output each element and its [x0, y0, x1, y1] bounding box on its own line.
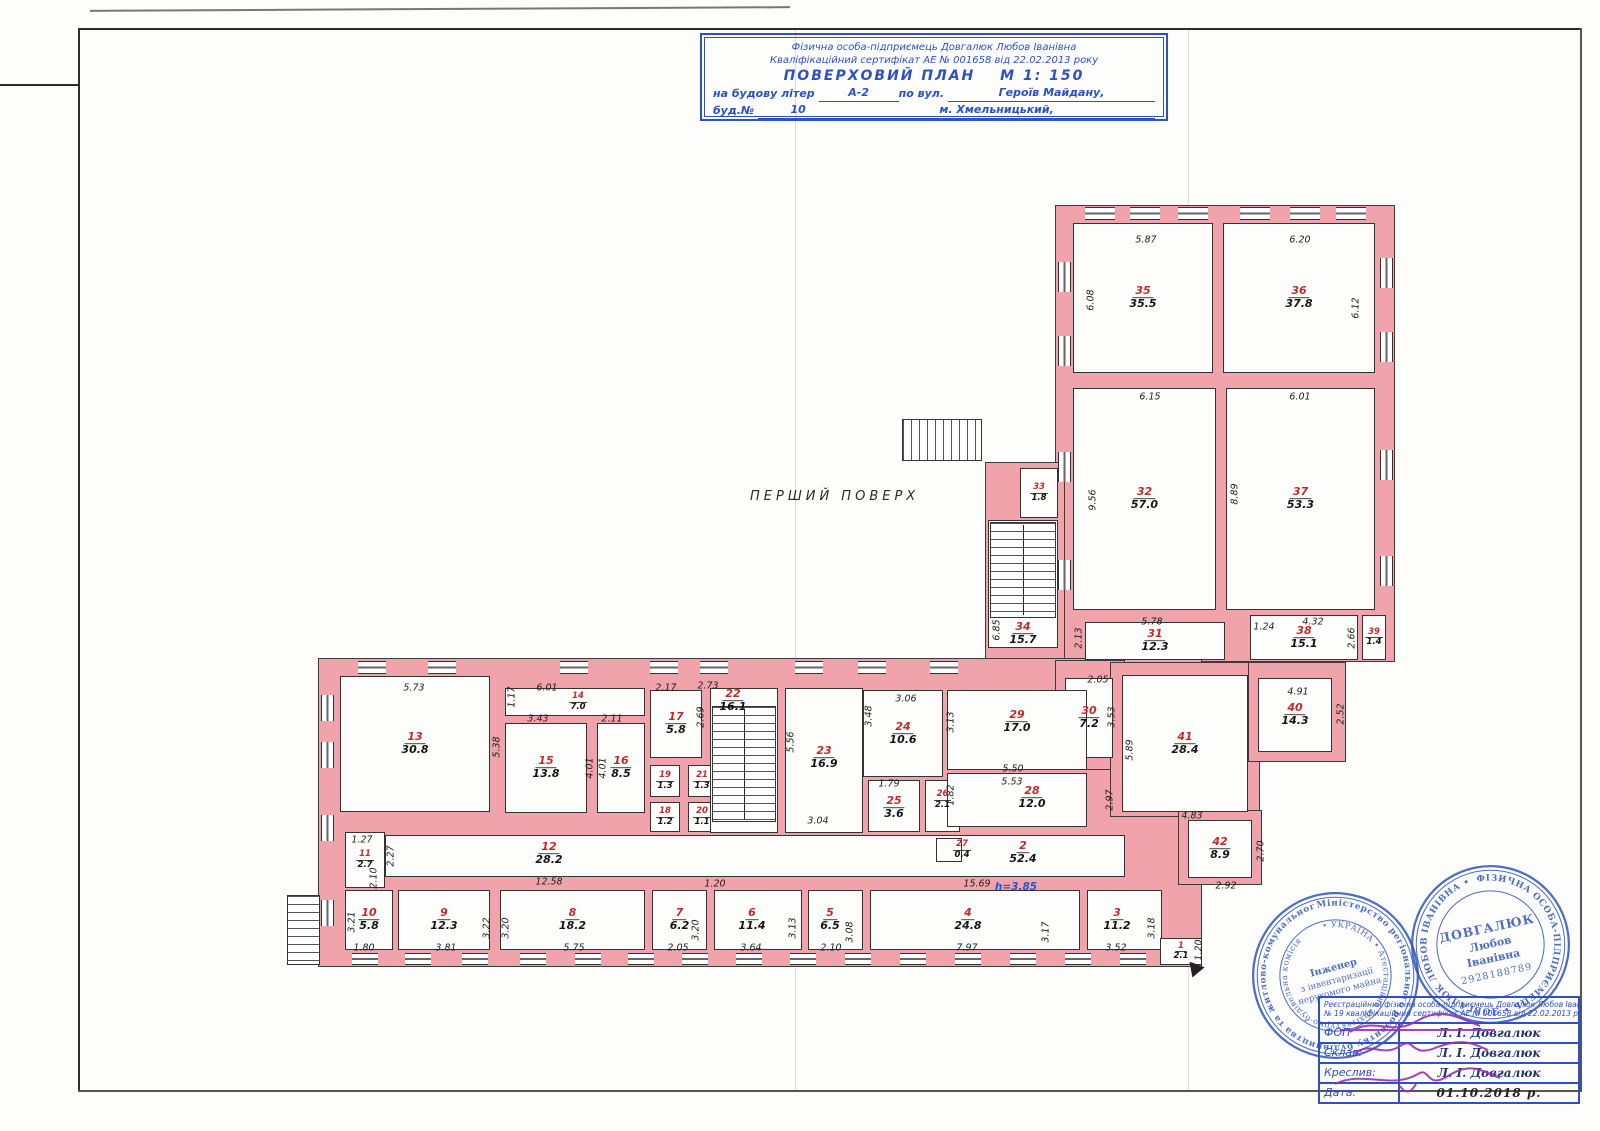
dimension-label: 5.75: [563, 943, 584, 954]
window-mark: [1380, 556, 1393, 586]
window-mark: [560, 661, 588, 674]
signature-stroke: [1335, 1068, 1500, 1091]
floor-title: ПЕРШИЙ ПОВЕРХ: [750, 489, 919, 504]
room-19-label: 191.3: [656, 771, 674, 791]
staircase: [287, 895, 320, 965]
dimension-label: 12.58: [535, 877, 562, 888]
dimension-label: 2.05: [1087, 675, 1108, 686]
room-5-label: 56.5: [820, 907, 840, 933]
dimension-label: 6.08: [1086, 289, 1097, 310]
room-17-label: 175.8: [665, 711, 686, 737]
dimension-label: 15.69: [963, 879, 990, 890]
signature-strokes: [1330, 1006, 1580, 1106]
room-26-label: 262.1: [934, 790, 952, 810]
room-area: 14.3: [1281, 716, 1308, 728]
dimension-label: 2.13: [1074, 627, 1085, 648]
room-area: 28.2: [535, 855, 562, 867]
scanned-sheet: Фізична особа-підприємець Довгалюк Любов…: [0, 0, 1600, 1131]
room-23-label: 2316.9: [810, 745, 837, 771]
room-number: 22: [722, 688, 743, 701]
room-area: 16.9: [810, 759, 837, 771]
room-area: 11.2: [1103, 921, 1130, 933]
room-area: 2.1: [934, 801, 952, 811]
window-mark: [1085, 207, 1115, 220]
room-number: 27: [953, 840, 971, 851]
room-4-label: 424.8: [954, 907, 981, 933]
dimension-label: 2.17: [655, 683, 676, 694]
room-area: 53.3: [1287, 500, 1314, 512]
window-mark: [1380, 450, 1393, 480]
room-number: 1: [1175, 941, 1187, 952]
signature-stroke: [1355, 1042, 1488, 1054]
room-1-label: 12.1: [1173, 941, 1188, 961]
dimension-label: 5.38: [492, 736, 503, 757]
room-24-label: 2410.6: [889, 721, 916, 747]
room-number: 7: [673, 907, 687, 920]
window-mark: [858, 661, 886, 674]
room-area: 1.3: [656, 782, 674, 792]
room-area: 18.2: [559, 921, 586, 933]
room-area: 11.4: [738, 921, 765, 933]
room-number: 20: [693, 807, 711, 818]
room-39-label: 391.4: [1365, 627, 1383, 647]
room-8-label: 818.2: [559, 907, 586, 933]
room-area: 12.3: [430, 921, 457, 933]
room-number: 12: [538, 841, 559, 854]
room-area: 7.2: [1078, 719, 1099, 731]
stair-divider: [1023, 525, 1024, 615]
stair-divider: [744, 709, 745, 819]
room-number: 37: [1290, 486, 1311, 499]
room-2-label: 252.4: [1009, 840, 1036, 866]
window-mark: [1120, 953, 1146, 965]
room-area: 30.8: [401, 745, 428, 757]
window-mark: [1058, 560, 1071, 590]
dimension-label: 4.01: [598, 757, 609, 778]
dimension-label: 2.52: [1336, 703, 1347, 724]
room-number: 30: [1078, 705, 1099, 718]
room-number: 25: [883, 795, 904, 808]
room-area: 0.4: [953, 851, 971, 861]
dimension-label: 3.53: [1107, 706, 1118, 727]
dimension-label: 3.20: [691, 919, 702, 940]
room-30-label: 307.2: [1078, 705, 1099, 731]
room-32-label: 3257.0: [1131, 486, 1158, 512]
room-3-label: 311.2: [1103, 907, 1130, 933]
dimension-label: 5.87: [1135, 235, 1156, 246]
window-mark: [1130, 207, 1160, 220]
staircase: [990, 522, 1056, 618]
room-number: 11: [356, 850, 374, 861]
room-42-label: 428.9: [1209, 836, 1230, 862]
room-area: 1.2: [656, 818, 674, 828]
room-area: 8.9: [1209, 850, 1230, 862]
dimension-label: 6.01: [1289, 392, 1310, 403]
room-33-label: 331.8: [1030, 483, 1048, 503]
room-number: 5: [823, 907, 837, 920]
room-15-label: 1513.8: [532, 755, 559, 781]
dimension-label: 2.70: [1256, 840, 1267, 861]
window-mark: [1380, 258, 1393, 288]
window-mark: [321, 742, 334, 768]
room-area: 8.5: [610, 769, 631, 781]
dimension-label: 2.97: [1105, 789, 1116, 810]
room-number: 26: [934, 790, 952, 801]
room-36-label: 3637.8: [1285, 285, 1312, 311]
room-16-label: 168.5: [610, 755, 631, 781]
window-mark: [575, 953, 601, 965]
dimension-label: 2.66: [1347, 627, 1358, 648]
room-number: 39: [1365, 627, 1383, 638]
dimension-label: 5.50: [1002, 764, 1023, 775]
window-mark: [321, 815, 334, 841]
window-mark: [790, 953, 816, 965]
dimension-label: 3.48: [864, 705, 875, 726]
window-mark: [462, 953, 488, 965]
dimension-label: 3.81: [435, 943, 456, 954]
room-number: 4: [961, 907, 975, 920]
window-mark: [1336, 207, 1366, 220]
room-area: 3.6: [883, 809, 904, 821]
room-area: 12.0: [1018, 799, 1045, 811]
room-area: 1.1: [693, 818, 711, 828]
room-12-label: 1228.2: [535, 841, 562, 867]
room-area: 2.1: [1173, 952, 1188, 962]
room-number: 35: [1132, 285, 1153, 298]
room-number: 2: [1016, 840, 1030, 853]
dimension-label: 2.92: [1215, 881, 1236, 892]
room-area: 13.8: [532, 769, 559, 781]
room-area: 15.1: [1290, 638, 1317, 650]
dimension-label: 3.13: [788, 917, 799, 938]
room-area: 6.2: [670, 921, 690, 933]
dimension-label: 3.18: [1147, 917, 1158, 938]
room-number: 9: [437, 907, 451, 920]
dimension-label: 2.73: [697, 681, 718, 692]
window-mark: [900, 953, 926, 965]
room-number: 15: [535, 755, 556, 768]
room-area: 37.8: [1285, 299, 1312, 311]
window-mark: [1058, 336, 1071, 366]
dimension-label: 1.79: [878, 779, 899, 790]
window-mark: [1380, 332, 1393, 362]
room-number: 8: [566, 907, 580, 920]
room-number: 32: [1134, 486, 1155, 499]
dimension-label: 3.13: [946, 711, 957, 732]
room-number: 13: [404, 731, 425, 744]
window-mark: [1010, 953, 1036, 965]
dimension-label: 3.21: [347, 911, 358, 932]
window-mark: [700, 661, 728, 674]
room-number: 16: [610, 755, 631, 768]
room-number: 23: [813, 745, 834, 758]
room-area: 5.8: [358, 921, 379, 933]
dimension-label: 3.20: [501, 917, 512, 938]
dimension-label: 7.97: [956, 943, 977, 954]
room-number: 29: [1006, 709, 1027, 722]
room-6-label: 611.4: [738, 907, 765, 933]
room-13-label: 1330.8: [401, 731, 428, 757]
room-10-label: 105.8: [358, 907, 379, 933]
room-34-label: 3415.7: [1009, 621, 1036, 647]
window-mark: [321, 695, 334, 721]
dimension-label: 3.08: [845, 921, 856, 942]
signature-stroke: [1340, 1014, 1495, 1032]
window-mark: [1240, 207, 1270, 220]
room-number: 18: [656, 807, 674, 818]
window-mark: [682, 953, 708, 965]
dimension-label: 6.85: [992, 619, 1003, 640]
window-mark: [795, 661, 823, 674]
room-number: 24: [892, 721, 913, 734]
staircase: [712, 706, 776, 822]
dimension-label: 3.52: [1105, 943, 1126, 954]
room-21-label: 211.3: [693, 771, 711, 791]
room-number: 10: [358, 907, 379, 920]
dimension-label: 5.56: [786, 731, 797, 752]
room-area: 1.4: [1365, 638, 1383, 648]
room-22-label: 2216.1: [719, 688, 746, 714]
room-area: 10.6: [889, 734, 916, 746]
dimension-label: 9.56: [1088, 489, 1099, 510]
room-35-label: 3535.5: [1129, 285, 1156, 311]
room-29-label: 2917.0: [1003, 709, 1030, 735]
room-11-label: 112.7: [356, 850, 374, 870]
room-area: 1.3: [693, 782, 711, 792]
room-27-label: 270.4: [953, 840, 971, 860]
window-mark: [520, 953, 546, 965]
room-area: 52.4: [1009, 854, 1036, 866]
room-number: 17: [665, 711, 686, 724]
window-mark: [955, 953, 981, 965]
room-area: 6.5: [820, 921, 840, 933]
window-mark: [1178, 207, 1208, 220]
staircase: [902, 419, 982, 461]
dimension-label: 5.73: [403, 683, 424, 694]
room-number: 6: [745, 907, 759, 920]
room-37-label: 3753.3: [1287, 486, 1314, 512]
room-14-label: 147.0: [569, 692, 587, 712]
room-25-label: 253.6: [883, 795, 904, 821]
room-area: 2.7: [356, 861, 374, 871]
dimension-label: 3.06: [895, 694, 916, 705]
dimension-label: 2.10: [820, 943, 841, 954]
room-28-label: 2812.0: [1018, 785, 1045, 811]
room-area: 17.0: [1003, 723, 1030, 735]
room-number: 19: [656, 771, 674, 782]
room-number: 21: [693, 771, 711, 782]
dimension-label: 5.78: [1141, 617, 1162, 628]
dimension-label: 1.20: [704, 879, 725, 890]
dimension-label: 1.24: [1253, 622, 1274, 633]
dimension-label: 6.01: [536, 683, 557, 694]
room-38-label: 3815.1: [1290, 625, 1317, 651]
room-number: 34: [1012, 621, 1033, 634]
window-mark: [1058, 452, 1071, 482]
dimension-label: 3.04: [807, 816, 828, 827]
room-7-label: 76.2: [670, 907, 690, 933]
room-area: 57.0: [1131, 500, 1158, 512]
room-number: 31: [1144, 628, 1165, 641]
room-number: 3: [1110, 907, 1124, 920]
dimension-label: 1.27: [351, 835, 372, 846]
window-mark: [628, 953, 654, 965]
window-mark: [930, 661, 958, 674]
room-area: 35.5: [1129, 299, 1156, 311]
dimension-label: 5.89: [1125, 739, 1136, 760]
window-mark: [650, 661, 678, 674]
room-number: 38: [1293, 625, 1314, 638]
window-mark: [1290, 207, 1320, 220]
dimension-label: 4.83: [1181, 811, 1202, 822]
room-area: 12.3: [1141, 642, 1168, 654]
room-area: 1.8: [1030, 494, 1048, 504]
window-mark: [352, 953, 378, 965]
dimension-label: 6.20: [1289, 235, 1310, 246]
room-40-label: 4014.3: [1281, 702, 1308, 728]
window-mark: [1058, 262, 1071, 292]
dimension-label: 2.10: [369, 867, 380, 888]
room-area: 24.8: [954, 921, 981, 933]
dimension-label: 1.17: [507, 686, 518, 707]
room-number: 36: [1288, 285, 1309, 298]
room-number: 33: [1030, 483, 1048, 494]
room-31-label: 3112.3: [1141, 628, 1168, 654]
room-number: 42: [1209, 836, 1230, 849]
room-number: 40: [1284, 702, 1305, 715]
room-41-label: 4128.4: [1171, 731, 1198, 757]
room-9-label: 912.3: [430, 907, 457, 933]
room-number: 28: [1021, 785, 1042, 798]
dimension-label: 1.80: [353, 943, 374, 954]
window-mark: [736, 953, 762, 965]
room-18-label: 181.2: [656, 807, 674, 827]
room-number: 14: [569, 692, 587, 703]
window-mark: [358, 661, 386, 674]
room-20-label: 201.1: [693, 807, 711, 827]
room-number: 41: [1174, 731, 1195, 744]
window-mark: [321, 900, 334, 926]
dimension-label: 8.89: [1230, 483, 1241, 504]
dimension-label: 6.12: [1351, 297, 1362, 318]
window-mark: [845, 953, 871, 965]
dimension-label: 4.01: [585, 757, 596, 778]
dimension-label: 2.69: [696, 706, 707, 727]
window-mark: [405, 953, 431, 965]
dimension-label: 4.91: [1287, 687, 1308, 698]
dimension-label: 3.43: [527, 714, 548, 725]
dimension-label: 2.05: [667, 943, 688, 954]
room-area: 15.7: [1009, 635, 1036, 647]
window-mark: [1065, 953, 1091, 965]
room-area: 5.8: [665, 725, 686, 737]
dimension-label: 3.22: [482, 917, 493, 938]
dimension-label: 3.17: [1041, 921, 1052, 942]
dimension-label: 2.11: [601, 714, 622, 725]
dimension-label: 6.15: [1139, 392, 1160, 403]
window-mark: [428, 661, 456, 674]
room-area: 7.0: [569, 703, 587, 713]
dimension-label: 3.64: [740, 943, 761, 954]
dimension-label: h=3.85: [995, 881, 1037, 893]
dimension-label: 2.27: [386, 845, 397, 866]
room-area: 28.4: [1171, 744, 1198, 756]
room-area: 16.1: [719, 702, 746, 714]
